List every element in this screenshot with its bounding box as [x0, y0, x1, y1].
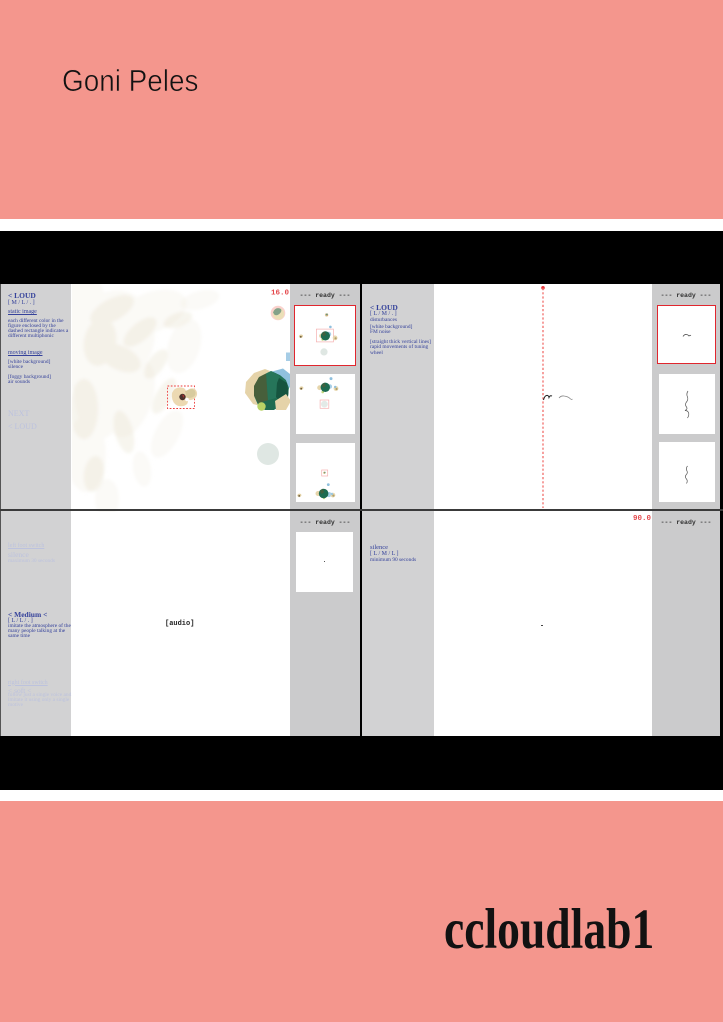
svg-text:16.0: 16.0: [271, 290, 290, 298]
